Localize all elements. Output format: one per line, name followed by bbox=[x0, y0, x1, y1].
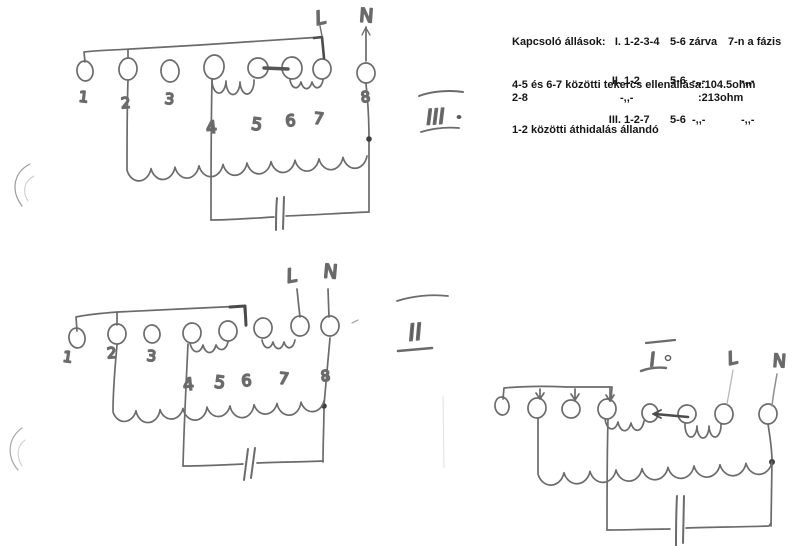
terminal-circle bbox=[320, 315, 339, 336]
phase-label-L: L bbox=[726, 347, 740, 370]
neutral-label-N: N bbox=[772, 351, 787, 373]
scanned-page: { "typed_notes": { "switch": { "heading"… bbox=[0, 0, 800, 546]
artifact-arc bbox=[18, 440, 25, 466]
bracket-tick-t3 bbox=[571, 389, 579, 400]
resistance-line-2-value: :213ohm bbox=[698, 92, 743, 104]
terminal8-drop-wire bbox=[768, 424, 772, 526]
scan-canvas: L N 1 2 3 4 5 6 7 8 bbox=[0, 0, 800, 546]
terminal-circle bbox=[107, 323, 126, 344]
phase-lead-wire bbox=[297, 289, 300, 317]
main-coil bbox=[127, 156, 367, 181]
terminal-circle bbox=[202, 54, 225, 81]
terminal-number: 6 bbox=[285, 111, 297, 131]
terminal-number: 2 bbox=[106, 344, 117, 363]
terminal-circle bbox=[312, 58, 331, 79]
bracket-wire-1-2-5 bbox=[76, 306, 246, 331]
resistance-line-2: 2-8 -,,- :213ohm bbox=[512, 92, 800, 104]
terminal-row bbox=[76, 54, 376, 84]
coil-4-5 bbox=[190, 342, 228, 353]
capacitor-right-wire bbox=[686, 523, 771, 528]
terminal-number: 5 bbox=[213, 372, 227, 393]
neutral-label-N: N bbox=[322, 260, 338, 283]
switch-row-1-col1: Kapcsoló állások: I. bbox=[512, 36, 624, 49]
label-overline bbox=[646, 340, 675, 343]
terminal-number: 3 bbox=[164, 90, 175, 109]
diagram-iii: L N 1 2 3 4 5 6 7 8 bbox=[76, 5, 463, 230]
diagram-i: L N I bbox=[494, 340, 787, 546]
terminal-number: 7 bbox=[312, 108, 324, 128]
switch-phase-terminal: 7-n a fázis bbox=[728, 36, 800, 49]
terminal-circle bbox=[76, 60, 95, 82]
label-underline bbox=[398, 348, 432, 351]
label-dot bbox=[457, 115, 462, 119]
terminal8-drop-wire bbox=[323, 338, 330, 462]
neutral-label-N: N bbox=[359, 5, 375, 28]
terminal4-drop-wire bbox=[211, 80, 212, 220]
capacitor-plate bbox=[676, 496, 677, 546]
terminal4-drop-wire bbox=[183, 344, 188, 466]
terminal-circle bbox=[714, 403, 734, 424]
capacitor-left-wire bbox=[183, 464, 243, 466]
terminal-number: 1 bbox=[78, 88, 89, 107]
bracket-wire-1-2-3-4 bbox=[503, 386, 612, 401]
switch-positions-heading: Kapcsoló állások: bbox=[512, 36, 606, 49]
switch-positions-row-1: Kapcsoló állások: I. 1-2-3-4 5-6 zárva 7… bbox=[512, 36, 800, 49]
terminal-numbers: 1 2 3 4 5 6 7 8 bbox=[78, 88, 371, 139]
switch-closed-contacts: 5-6 -,,- bbox=[670, 114, 728, 127]
terminal-circle bbox=[561, 399, 581, 419]
coil-6-7 bbox=[262, 340, 295, 349]
capacitor-left-wire bbox=[211, 217, 274, 220]
main-coil bbox=[538, 462, 772, 485]
label-dot bbox=[665, 356, 670, 361]
label-overline bbox=[397, 295, 448, 301]
terminal-number: 1 bbox=[62, 347, 74, 366]
terminal-number: 4 bbox=[205, 118, 218, 139]
terminal-circle bbox=[527, 397, 547, 418]
terminal-row bbox=[494, 396, 778, 425]
resistance-notes: 4-5 és 6-7 közötti tekercs ellenállása:1… bbox=[512, 79, 800, 104]
terminal4-drop-wire bbox=[607, 419, 608, 530]
capacitor-left-wire bbox=[607, 529, 670, 530]
main-coil bbox=[113, 401, 324, 423]
terminal-circle bbox=[253, 317, 273, 338]
label-overline bbox=[419, 91, 463, 96]
terminal-circle bbox=[160, 59, 180, 82]
label-roman-numeral: II bbox=[407, 319, 423, 346]
terminal-number: 8 bbox=[360, 88, 371, 107]
capacitor-right-wire bbox=[257, 461, 323, 463]
artifact-arc bbox=[25, 176, 34, 201]
terminal-circle bbox=[143, 324, 161, 344]
terminal-circle bbox=[494, 396, 510, 416]
terminal-circle bbox=[677, 404, 697, 424]
coil-6-7 bbox=[290, 80, 323, 89]
resistance-line-1-value: 104.5ohm bbox=[705, 79, 756, 91]
capacitor-plate bbox=[283, 197, 284, 229]
phase-label-L: L bbox=[285, 264, 299, 288]
neutral-lead-wire bbox=[328, 289, 329, 317]
terminal-circle bbox=[118, 57, 138, 80]
capacitor-plate bbox=[683, 496, 684, 543]
resistance-line-1-label: 4-5 és 6-7 közötti tekercs ellenállása: bbox=[512, 79, 705, 91]
terminal-number: 6 bbox=[241, 371, 253, 391]
bridge-note: 1-2 közötti áthidalás állandó bbox=[512, 124, 659, 136]
terminal-circle bbox=[356, 62, 375, 83]
capacitor-plate bbox=[276, 198, 277, 230]
capacitor-right-wire bbox=[286, 212, 369, 216]
resistance-line-2-ditto: -,,- bbox=[620, 92, 633, 104]
bridge-5-6 bbox=[264, 68, 288, 69]
stray-pencil-tick bbox=[352, 320, 358, 323]
coil-6-7 bbox=[685, 424, 721, 438]
artifact-crease bbox=[443, 396, 444, 468]
diagram-ii: L N 1 2 3 4 5 6 7 8 II bbox=[62, 260, 448, 480]
resistance-line-1: 4-5 és 6-7 közötti tekercs ellenállása:1… bbox=[512, 79, 800, 91]
switch-position-numeral: I. bbox=[615, 36, 621, 49]
typed-notes: Kapcsoló állások: I. 1-2-3-4 5-6 zárva 7… bbox=[512, 10, 800, 140]
coil-4-5 bbox=[212, 79, 254, 94]
terminal-circle bbox=[758, 403, 777, 424]
junction-dot bbox=[366, 136, 372, 142]
switch-closed-contacts: 5-6 zárva bbox=[670, 36, 728, 49]
terminal-circle bbox=[597, 398, 617, 420]
terminal-number: 2 bbox=[120, 94, 131, 113]
switch-contacts: 1-2-3-4 bbox=[624, 36, 670, 49]
terminal-number: 5 bbox=[250, 114, 264, 135]
terminal-circle bbox=[182, 322, 202, 344]
phase-lead-wire bbox=[727, 370, 733, 404]
coil-4-5 bbox=[605, 419, 644, 431]
capacitor-plate bbox=[244, 449, 248, 480]
terminal-number: 7 bbox=[277, 368, 289, 388]
diagram-label-ii: II bbox=[397, 295, 448, 351]
terminal-circle bbox=[290, 315, 310, 336]
terminal-circle bbox=[218, 320, 237, 341]
diagram-label-iii: III bbox=[419, 91, 463, 132]
diagram-label-i: I bbox=[641, 340, 675, 371]
resistance-line-2-label: 2-8 bbox=[512, 92, 528, 104]
terminal-number: 3 bbox=[146, 347, 157, 366]
capacitor-plate bbox=[251, 448, 255, 478]
neutral-lead-wire bbox=[772, 374, 777, 406]
bracket-corner-overdraw bbox=[314, 37, 324, 58]
terminal-number: 8 bbox=[320, 367, 331, 386]
switch-phase-terminal: -,,- bbox=[728, 114, 800, 127]
label-roman-numeral: III bbox=[425, 104, 445, 129]
terminal-number: 4 bbox=[182, 375, 195, 396]
